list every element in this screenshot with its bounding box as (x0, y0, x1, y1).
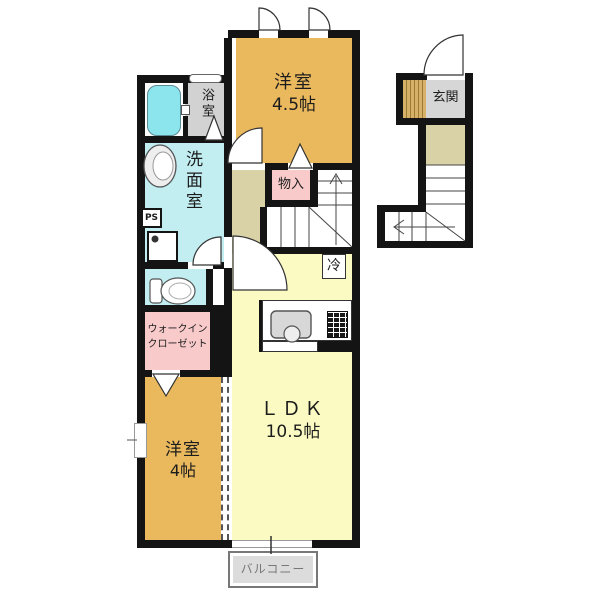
door-opening (288, 163, 313, 170)
kitchen-counter-front (262, 341, 318, 352)
sliding-partition (221, 377, 229, 540)
pipe-space-box: PS (141, 208, 162, 228)
wic-line1: ウォークイン (143, 322, 212, 337)
pipe-space-label: PS (143, 213, 160, 224)
ldk-label: ＬＤＫ 10.5帖 (240, 398, 346, 443)
bath-faucet-icon (181, 105, 190, 115)
washroom-label: 洗面室 (180, 150, 205, 262)
wic-label: ウォークイン クローゼット (143, 322, 212, 352)
bedroom4-label: 洋室 4帖 (145, 440, 221, 481)
bathroom-label: 浴室 (197, 88, 216, 140)
casement-window-icon (259, 8, 330, 30)
door-opening (233, 163, 265, 170)
entrance-door-opening (427, 73, 465, 80)
storage-label: 物入 (272, 177, 310, 193)
balcony-sliding-door (232, 540, 312, 548)
refrigerator-box: 冷 (322, 254, 346, 279)
entrance-door-swing-icon (424, 35, 463, 75)
refrigerator-label: 冷 (323, 258, 345, 276)
washing-machine-icon (147, 231, 178, 262)
entrance-stairs-icon (394, 165, 465, 241)
window-opening (259, 30, 278, 38)
entrance-landing (426, 125, 465, 165)
entrance-mat (403, 80, 426, 118)
wic-line2: クローゼット (143, 337, 212, 352)
floor-plan: PS 冷 (0, 0, 600, 600)
bedroom4-name: 洋室 (145, 440, 221, 461)
room-ldk (232, 254, 352, 540)
door-opening (188, 262, 213, 269)
bedroom45-size: 4.5帖 (244, 95, 344, 116)
bedroom45-name: 洋室 (244, 72, 344, 95)
entrance-label: 玄関 (426, 90, 465, 106)
ldk-name: ＬＤＫ (240, 398, 346, 422)
ldk-size: 10.5帖 (240, 422, 346, 443)
bathtub-icon (147, 85, 181, 136)
bedroom4-size: 4帖 (145, 461, 221, 481)
balcony-label: バルコニー (228, 562, 318, 577)
bath-shelf-icon (189, 74, 222, 83)
bedroom45-label: 洋室 4.5帖 (244, 72, 344, 116)
window-opening (309, 30, 328, 38)
stove-icon (327, 311, 348, 338)
